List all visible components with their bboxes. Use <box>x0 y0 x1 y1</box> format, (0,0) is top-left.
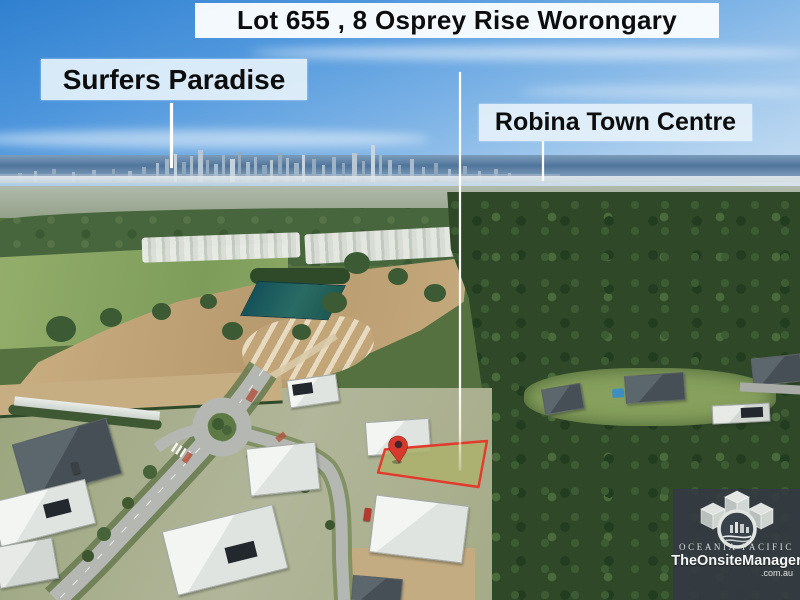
pointer-line-surfers-paradise <box>170 103 173 168</box>
watermark-panel: OCEANIA PACIFIC TheOnsiteManager .com.au <box>673 489 800 600</box>
label-surfers-paradise-text: Surfers Paradise <box>63 64 286 96</box>
label-robina-town-centre: Robina Town Centre <box>479 104 752 141</box>
watermark-brand-main: TheOnsiteManager <box>671 553 800 569</box>
label-surfers-paradise: Surfers Paradise <box>41 59 307 100</box>
aerial-photo: Lot 655 , 8 Osprey Rise Worongary Surfer… <box>0 0 800 600</box>
address-banner: Lot 655 , 8 Osprey Rise Worongary <box>195 3 719 38</box>
pointer-line-lot <box>459 72 461 470</box>
watermark-brand-top: OCEANIA PACIFIC <box>679 542 794 552</box>
label-robina-town-centre-text: Robina Town Centre <box>495 108 736 137</box>
pointer-line-robina <box>542 141 544 181</box>
watermark-brand-suffix: .com.au <box>761 568 793 578</box>
address-banner-text: Lot 655 , 8 Osprey Rise Worongary <box>237 5 677 36</box>
